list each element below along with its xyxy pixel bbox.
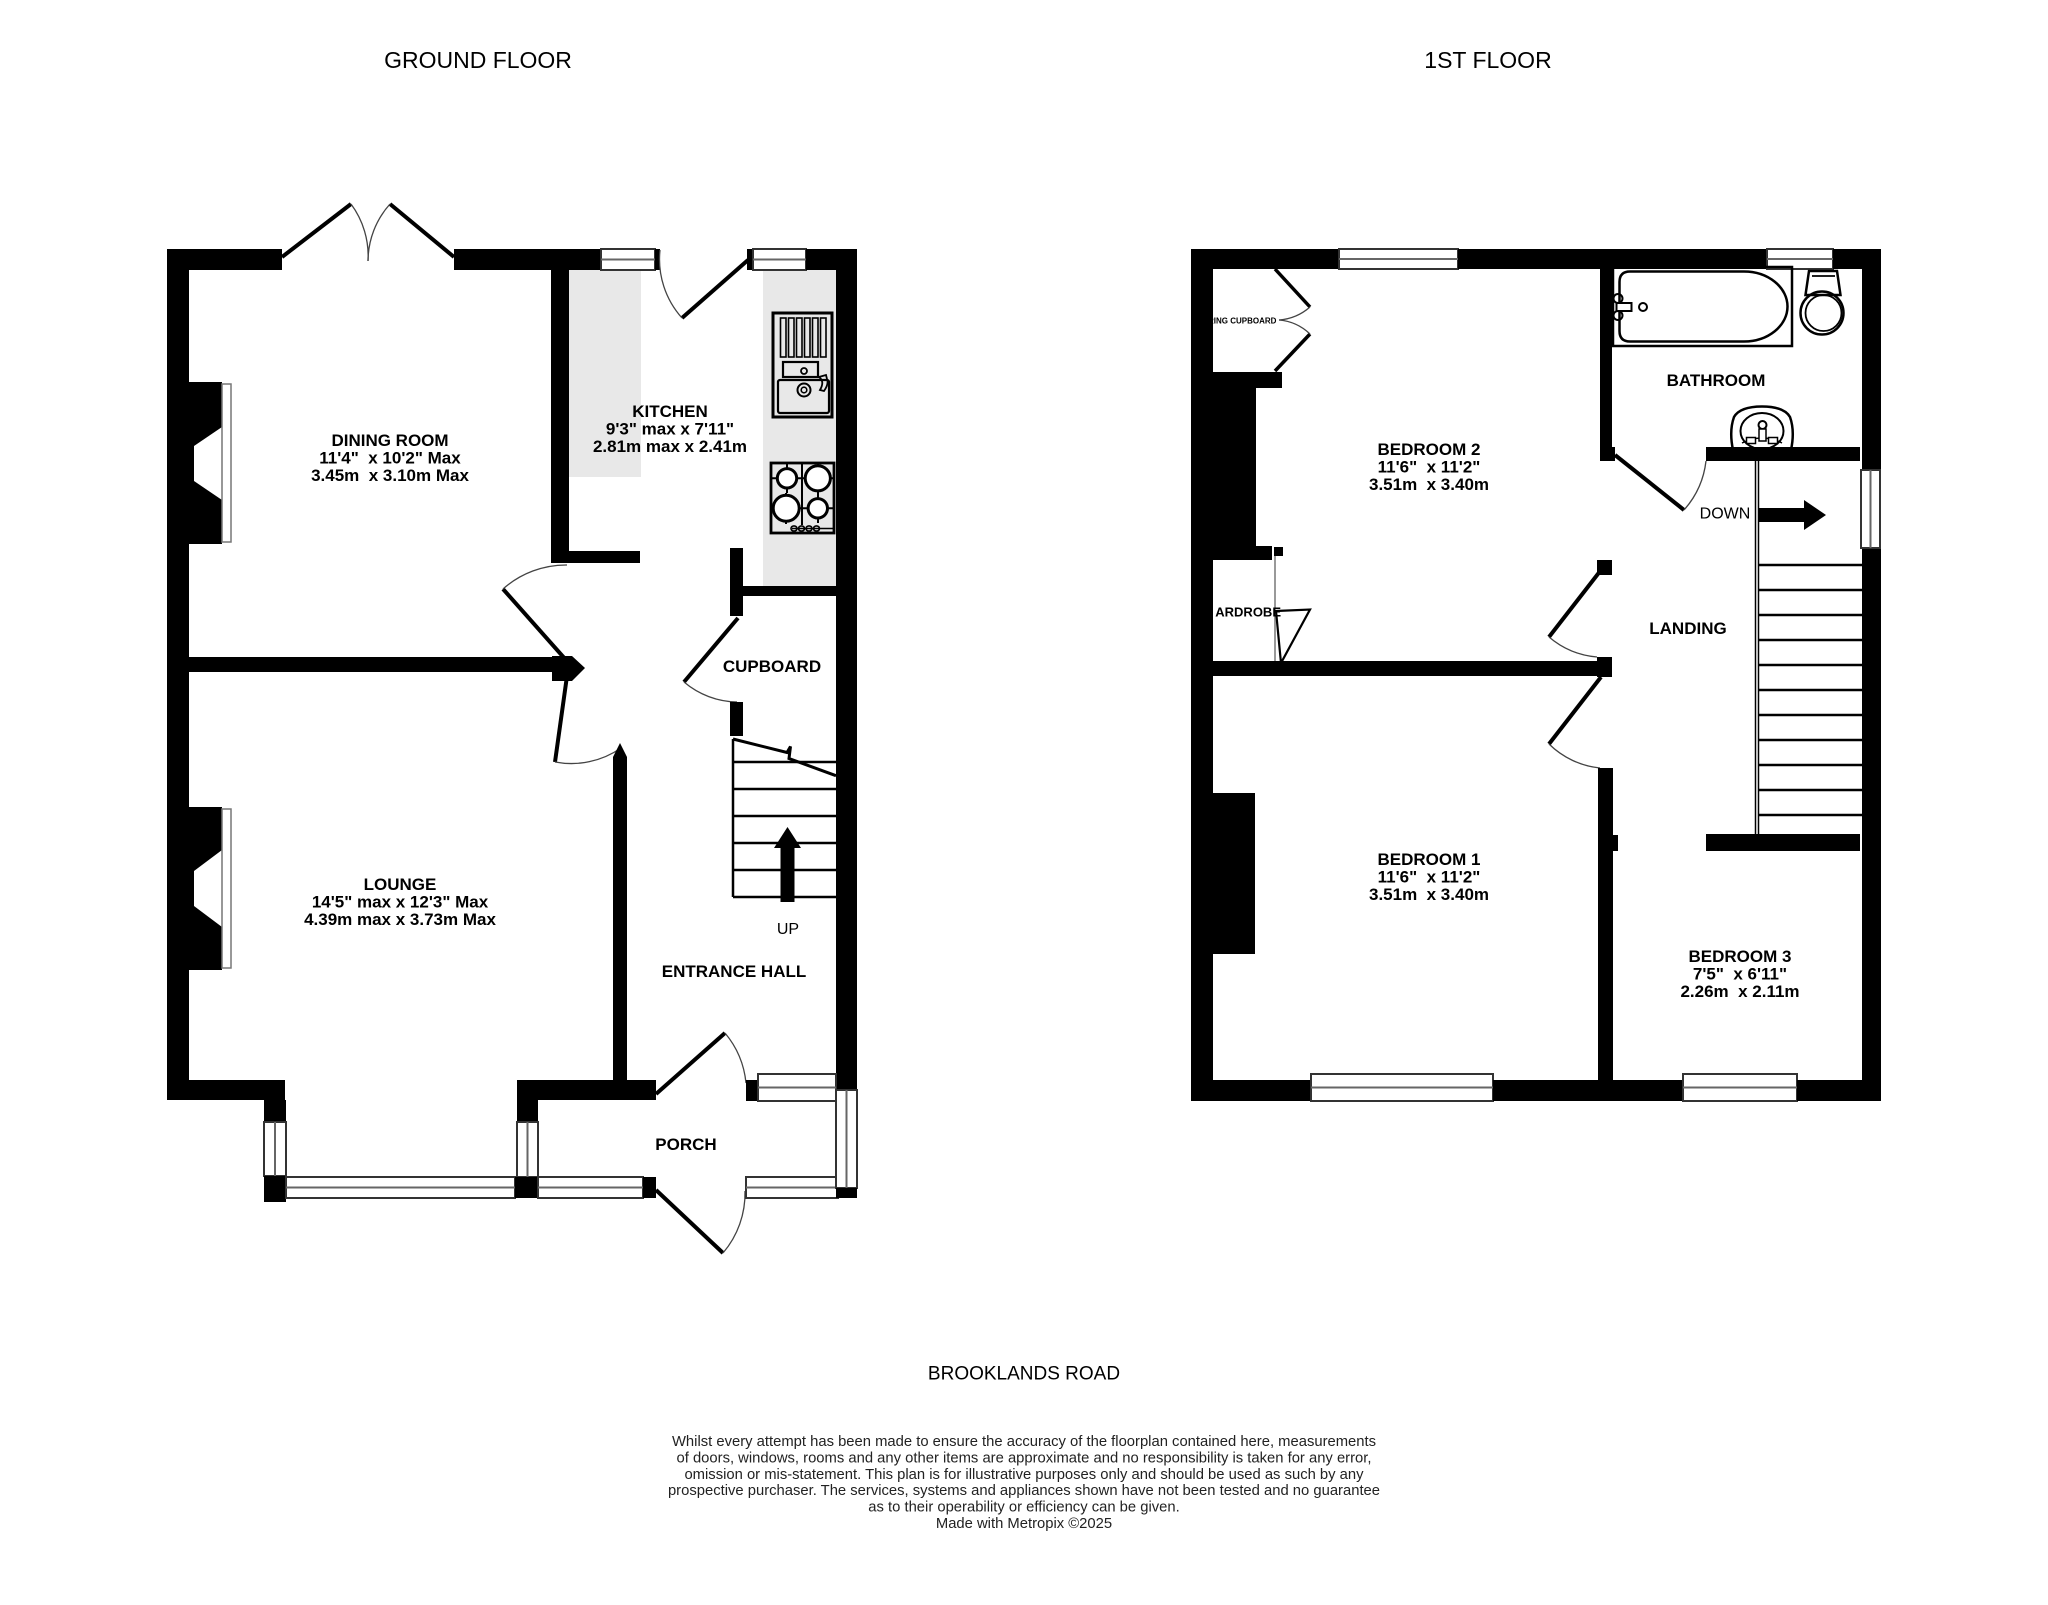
svg-text:as to their operability or eff: as to their operability or efficiency ca… — [868, 1500, 1179, 1516]
svg-text:ENTRANCE HALL: ENTRANCE HALL — [662, 962, 807, 981]
svg-text:4.39m max x 3.73m Max: 4.39m max x 3.73m Max — [304, 910, 496, 929]
svg-text:3.45m x 3.10m Max: 3.45m x 3.10m Max — [311, 466, 469, 485]
svg-text:2.81m max x 2.41m: 2.81m max x 2.41m — [593, 437, 747, 456]
svg-text:BEDROOM 3: BEDROOM 3 — [1689, 947, 1792, 966]
svg-text:LOUNGE: LOUNGE — [364, 875, 437, 894]
svg-text:prospective purchaser. The ser: prospective purchaser. The services, sys… — [668, 1483, 1380, 1499]
svg-text:BEDROOM 2: BEDROOM 2 — [1378, 440, 1481, 459]
svg-text:BROOKLANDS ROAD: BROOKLANDS ROAD — [928, 1364, 1120, 1385]
svg-text:omission or mis-statement. Thi: omission or mis-statement. This plan is … — [684, 1467, 1364, 1483]
svg-text:BEDROOM 1: BEDROOM 1 — [1378, 850, 1481, 869]
svg-text:of doors, windows, rooms and a: of doors, windows, rooms and any other i… — [677, 1450, 1372, 1466]
svg-text:ARDROBE: ARDROBE — [1215, 605, 1281, 620]
svg-text:11'4" x 10'2" Max: 11'4" x 10'2" Max — [319, 449, 461, 468]
svg-text:LANDING: LANDING — [1649, 619, 1726, 638]
svg-text:3.51m x 3.40m: 3.51m x 3.40m — [1369, 885, 1489, 904]
svg-text:CUPBOARD: CUPBOARD — [723, 657, 821, 676]
svg-text:DINING ROOM: DINING ROOM — [331, 431, 448, 450]
svg-text:2.26m x 2.11m: 2.26m x 2.11m — [1680, 982, 1799, 1001]
svg-text:KITCHEN: KITCHEN — [632, 402, 708, 421]
svg-text:1ST FLOOR: 1ST FLOOR — [1424, 47, 1551, 73]
svg-text:7'5" x 6'11": 7'5" x 6'11" — [1693, 965, 1787, 984]
svg-text:9'3" max x 7'11": 9'3" max x 7'11" — [606, 420, 734, 439]
svg-text:Whilst every attempt has been: Whilst every attempt has been made to en… — [672, 1434, 1376, 1450]
svg-text:11'6" x 11'2": 11'6" x 11'2" — [1378, 458, 1481, 477]
svg-text:RING CUPBOARD: RING CUPBOARD — [1208, 317, 1277, 326]
svg-text:3.51m x 3.40m: 3.51m x 3.40m — [1369, 475, 1489, 494]
svg-text:PORCH: PORCH — [655, 1135, 716, 1154]
svg-text:11'6" x 11'2": 11'6" x 11'2" — [1378, 868, 1481, 887]
svg-text:BATHROOM: BATHROOM — [1667, 371, 1766, 390]
svg-text:14'5" max x 12'3" Max: 14'5" max x 12'3" Max — [312, 893, 489, 912]
svg-text:DOWN: DOWN — [1700, 506, 1751, 523]
svg-text:UP: UP — [777, 921, 799, 938]
svg-text:Made with Metropix ©2025: Made with Metropix ©2025 — [936, 1516, 1112, 1532]
svg-text:GROUND FLOOR: GROUND FLOOR — [384, 47, 572, 73]
